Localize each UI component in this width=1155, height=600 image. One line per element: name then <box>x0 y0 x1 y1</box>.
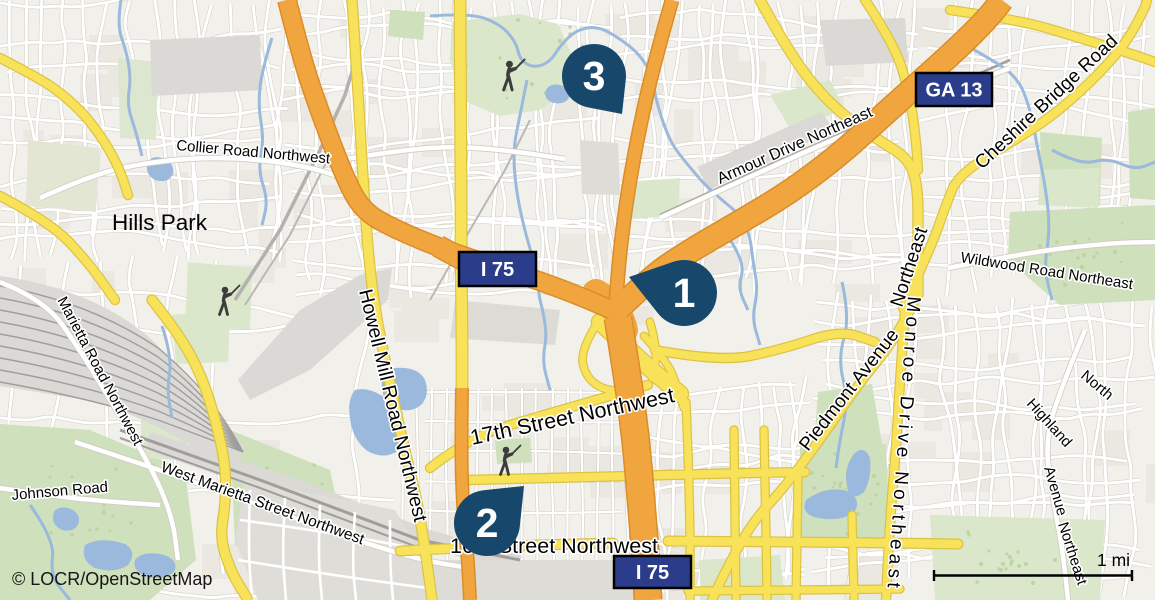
svg-text:3: 3 <box>583 53 606 99</box>
svg-text:I 75: I 75 <box>481 259 514 281</box>
svg-text:© LOCR/OpenStreetMap: © LOCR/OpenStreetMap <box>12 569 212 589</box>
svg-text:GA 13: GA 13 <box>925 80 982 102</box>
svg-text:Hills Park: Hills Park <box>112 210 208 235</box>
svg-text:1 mi: 1 mi <box>1097 550 1130 570</box>
svg-text:2: 2 <box>476 500 499 546</box>
svg-text:1: 1 <box>673 270 696 316</box>
svg-text:I 75: I 75 <box>636 562 669 584</box>
